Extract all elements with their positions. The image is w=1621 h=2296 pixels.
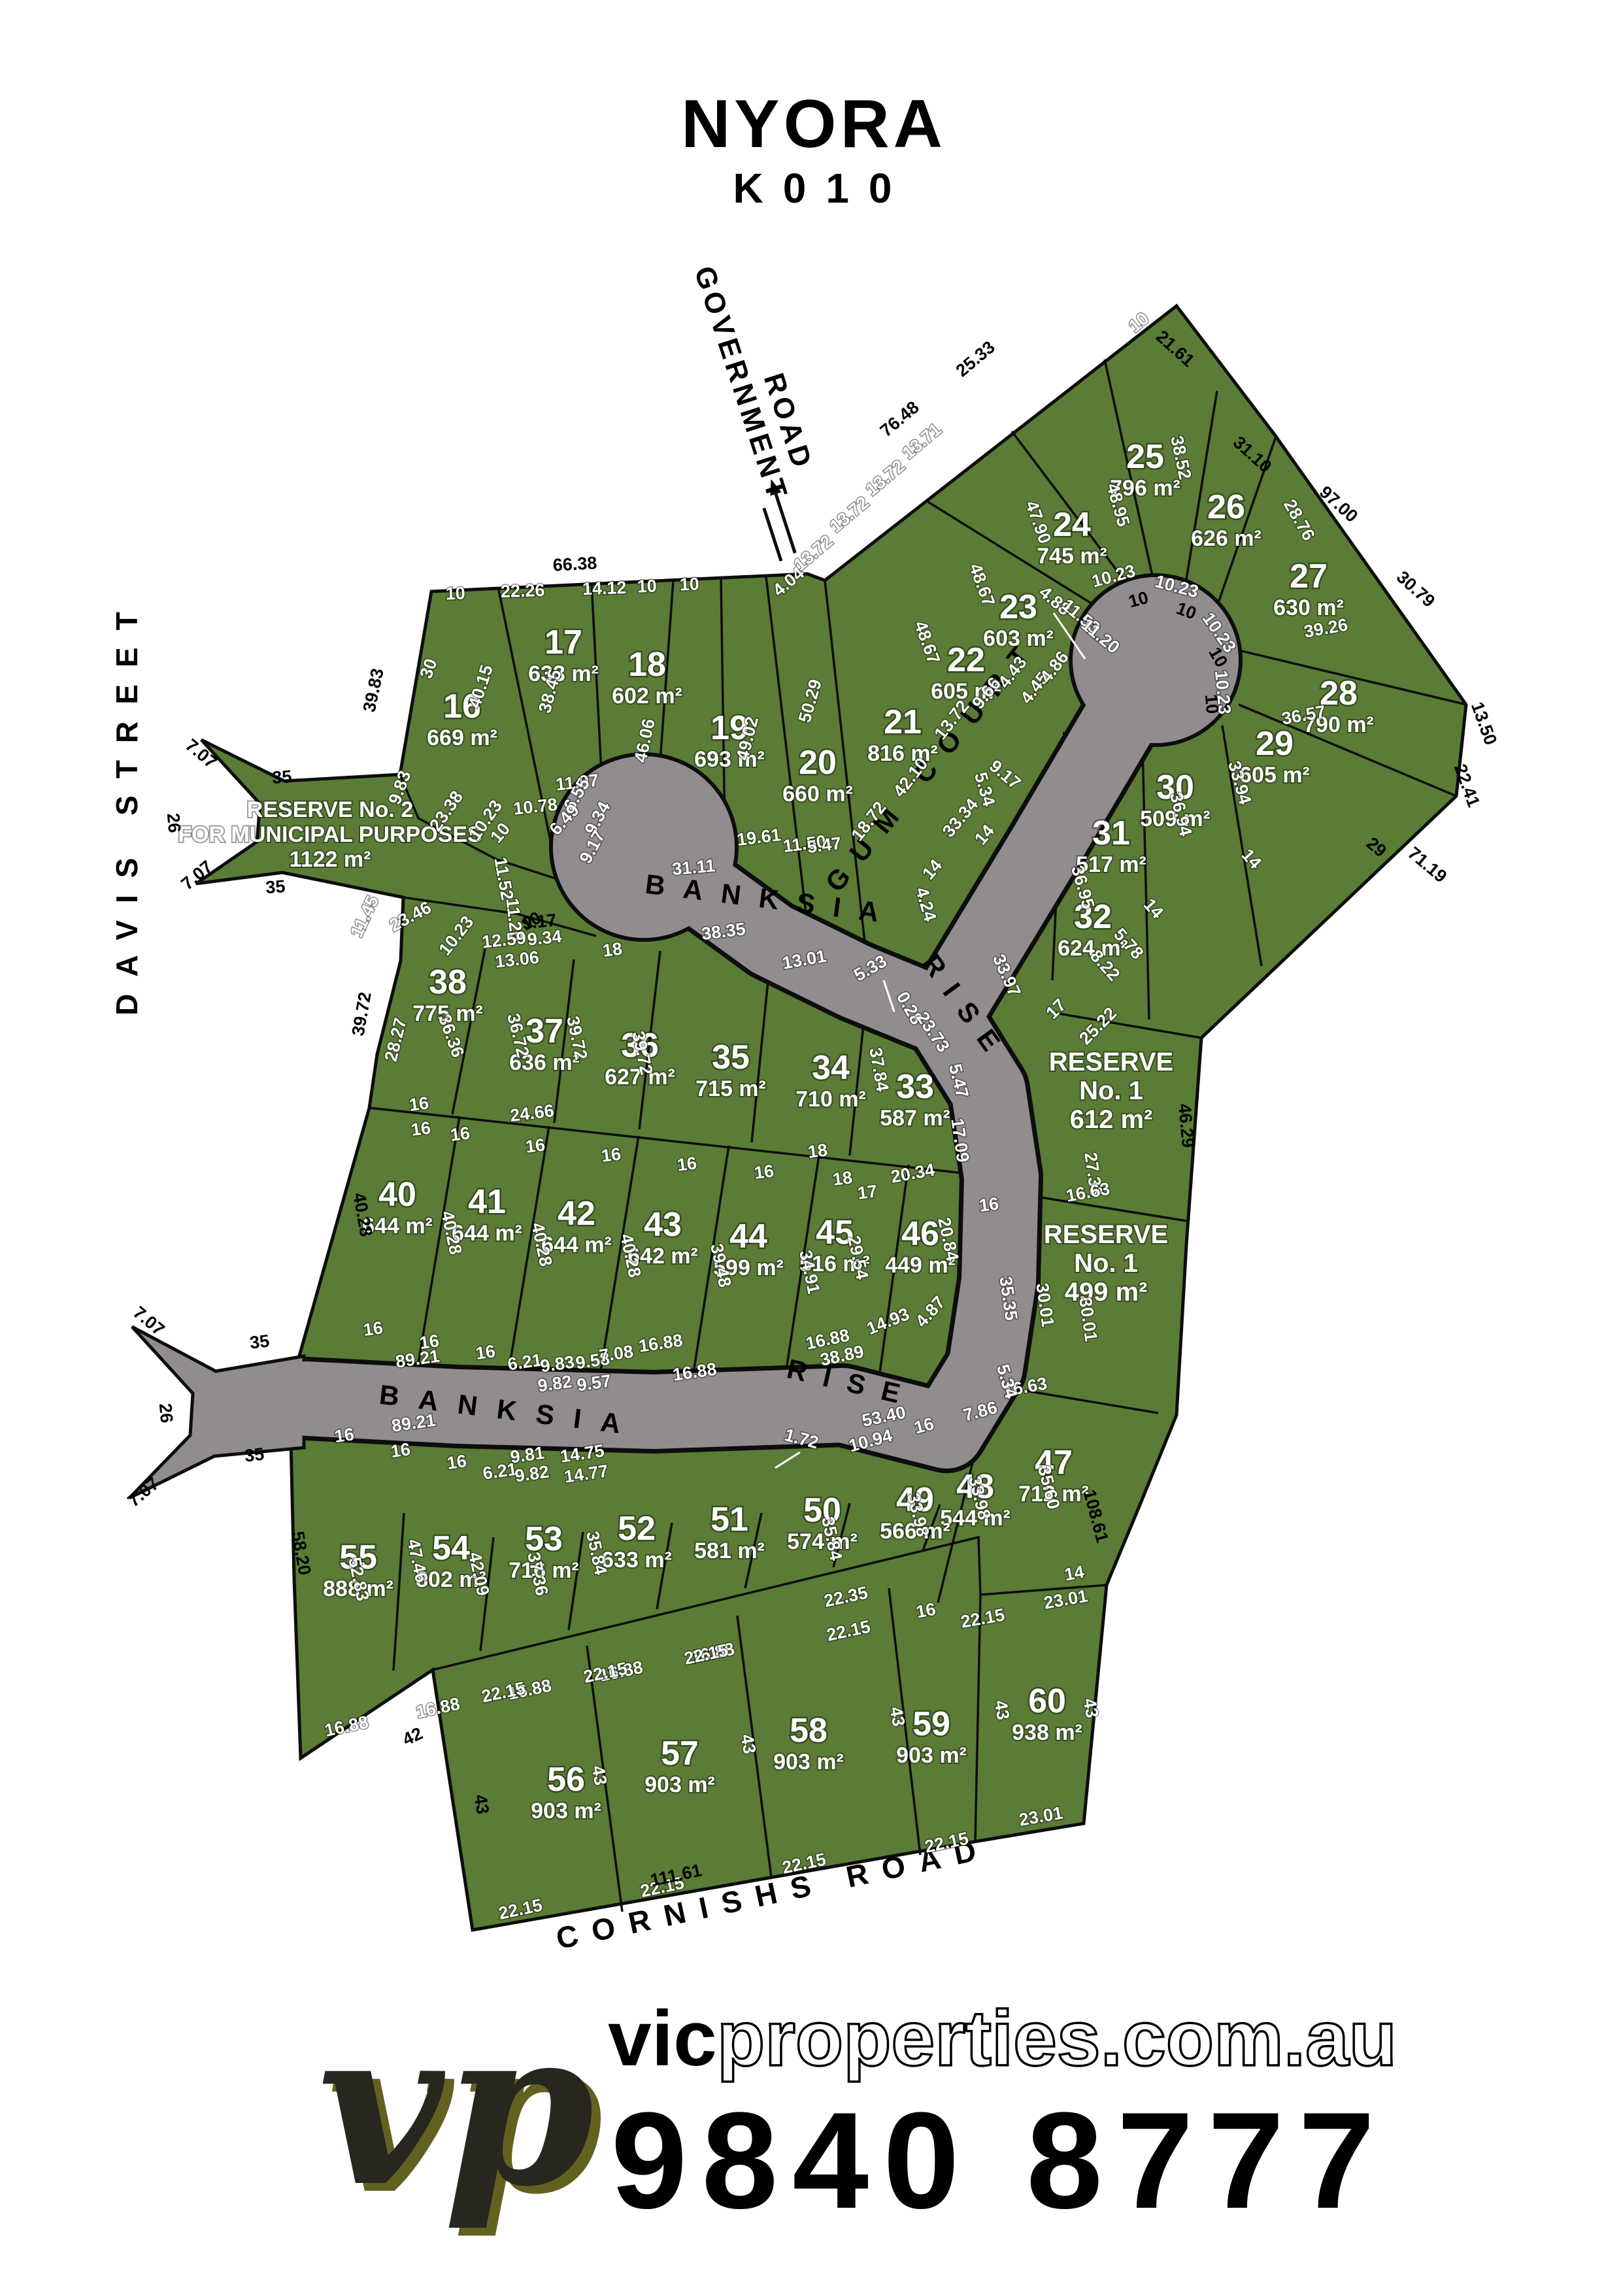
lot-number: 33 — [896, 1068, 934, 1106]
lot-number: 23 — [999, 588, 1037, 626]
reserve-text-line: RESERVE — [1049, 1048, 1173, 1076]
dimension-label: 18 — [807, 1140, 828, 1161]
lot-area: 669 m² — [427, 725, 497, 750]
dimension-label: 16 — [408, 1093, 429, 1114]
dimension-label: 16 — [449, 1123, 471, 1144]
dimension-label: 35 — [244, 1444, 265, 1466]
dimension-label: 16 — [410, 1118, 431, 1139]
dimension-label: 14.12 — [582, 578, 627, 599]
dimension-label: 43 — [471, 1793, 493, 1816]
dimension-label: 35 — [249, 1331, 271, 1353]
lot-number: 31 — [1092, 814, 1130, 852]
dimension-label: 43 — [588, 1764, 610, 1787]
brand-url: vicproperties.com.au — [608, 1995, 1397, 2082]
reserve-text-line: 1122 m² — [290, 847, 371, 872]
lot-area: 903 m² — [896, 1743, 967, 1768]
footer-brand: vp vp vicproperties.com.au 9840 8777 — [318, 1980, 1397, 2242]
dimension-label: 16 — [978, 1193, 999, 1215]
lot-number: 43 — [644, 1206, 682, 1244]
dimension-label: 31.11 — [671, 856, 716, 879]
dimension-label: 43 — [1079, 1697, 1102, 1720]
reserve-text-line: No. 1 — [1079, 1076, 1143, 1105]
dimension-label: 18 — [601, 939, 623, 960]
lot-area: 603 m² — [983, 626, 1054, 651]
lot-number: 22 — [947, 641, 985, 679]
lot-number: 21 — [884, 703, 922, 741]
dimension-label: 43 — [737, 1733, 760, 1755]
dimension-label: 22.26 — [500, 580, 545, 601]
dimension-label: 43 — [990, 1699, 1013, 1722]
dimension-label: 14 — [1063, 1562, 1086, 1585]
dimension-label: 16 — [390, 1439, 412, 1461]
lot-number: 25 — [1126, 438, 1164, 476]
page-subtitle: K010 — [733, 165, 912, 212]
lot-number: 27 — [1290, 557, 1328, 595]
lot-area: 626 m² — [1191, 526, 1262, 551]
dimension-label: 16 — [676, 1153, 697, 1174]
reserve-text-line: RESERVE — [1044, 1220, 1168, 1249]
lot-number: 20 — [799, 744, 837, 782]
dimension-label: 5.47 — [806, 833, 843, 857]
lot-area: 715 m² — [695, 1076, 766, 1101]
lot-area: 745 m² — [1037, 544, 1107, 569]
lot-number: 52 — [618, 1510, 656, 1548]
logo-mark: vp — [318, 1980, 595, 2234]
dimension-label: 46.29 — [1175, 1103, 1198, 1148]
lot-number: 29 — [1256, 725, 1294, 763]
lot-area: 710 m² — [795, 1087, 866, 1112]
lot-area: 816 m² — [867, 741, 938, 766]
dimension-label: 16 — [753, 1161, 775, 1182]
lot-number: 57 — [661, 1735, 699, 1772]
lot-number: 44 — [729, 1218, 767, 1256]
lot-number: 34 — [812, 1049, 850, 1087]
lot-area: 903 m² — [531, 1799, 601, 1823]
lot-number: 59 — [912, 1705, 950, 1743]
lot-number: 24 — [1053, 506, 1091, 544]
lot-number: 18 — [628, 646, 666, 684]
dimension-label: 10 — [1201, 693, 1223, 715]
lot-area: 633 m² — [601, 1548, 672, 1572]
lot-number: 51 — [710, 1501, 748, 1539]
page-title: NYORA — [681, 86, 946, 162]
dimension-label: 35 — [271, 767, 292, 788]
dimension-label: 17 — [856, 1181, 878, 1203]
lot-area: 581 m² — [694, 1539, 765, 1563]
plat-page: NYORA K010 — [0, 0, 1621, 2293]
lot-area: 903 m² — [773, 1750, 844, 1774]
dimension-label: 16 — [600, 1144, 622, 1165]
lot-number: 41 — [468, 1183, 506, 1221]
lot-area: 587 m² — [880, 1106, 950, 1131]
lot-number: 46 — [901, 1215, 939, 1253]
brand-suffix: properties.com.au — [717, 1995, 1397, 2082]
dimension-label: 66.38 — [552, 553, 597, 574]
dimension-label: 9.34 — [526, 926, 562, 949]
dimension-label: 10 — [637, 576, 657, 596]
lot-number: 60 — [1028, 1682, 1066, 1720]
lot-number: 40 — [378, 1176, 416, 1214]
reserve-text-line: No. 1 — [1074, 1249, 1138, 1278]
lot-number: 56 — [547, 1761, 585, 1799]
brand-phone: 9840 8777 — [611, 2084, 1390, 2237]
dimension-label: 26 — [156, 1403, 177, 1424]
lot-number: 28 — [1320, 674, 1358, 712]
lot-number: 54 — [432, 1529, 470, 1567]
brand-prefix: vic — [608, 1995, 717, 2082]
dimension-label: 35 — [265, 876, 286, 897]
dimension-label: 16 — [914, 1599, 937, 1622]
dimension-label: 26 — [163, 812, 185, 834]
lot-number: 26 — [1207, 488, 1245, 526]
subdivision-map: NYORA K010 — [0, 0, 1621, 2293]
lot-area: 903 m² — [644, 1772, 715, 1797]
lot-number: 38 — [429, 963, 467, 1001]
dimension-label: 18 — [831, 1167, 853, 1189]
lot-number: 17 — [544, 624, 582, 661]
lot-number: 42 — [558, 1195, 595, 1233]
dimension-label: 10 — [679, 574, 699, 594]
dimension-label: 16 — [362, 1318, 384, 1340]
road-name-davis-street: DAVIS STREET — [110, 595, 144, 1015]
dimension-label: 43 — [886, 1705, 909, 1728]
lot-area: 660 m² — [782, 782, 853, 807]
reserve-text-line: 612 m² — [1070, 1105, 1153, 1134]
dimension-label: 10 — [445, 583, 465, 603]
dimension-label: 16 — [475, 1341, 497, 1363]
dimension-label: 16 — [333, 1424, 356, 1446]
lot-number: 58 — [790, 1712, 827, 1750]
lot-area: 938 m² — [1012, 1720, 1082, 1745]
dimension-label: 16 — [446, 1451, 468, 1473]
lot-number: 35 — [712, 1039, 750, 1076]
lot-area: 602 m² — [612, 684, 682, 708]
dimension-label: 16 — [524, 1135, 546, 1156]
